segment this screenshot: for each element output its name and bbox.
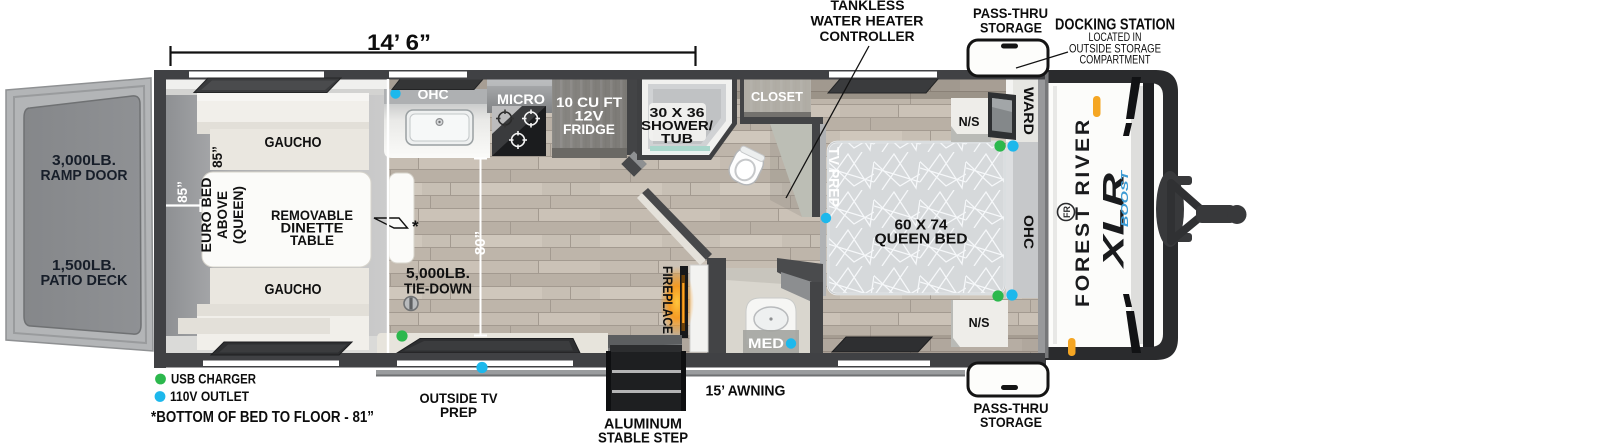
svg-text:MICRO: MICRO xyxy=(497,91,545,107)
svg-text:TIE-DOWN: TIE-DOWN xyxy=(404,281,472,298)
svg-text:85”: 85” xyxy=(210,146,225,168)
svg-text:TANKLESS: TANKLESS xyxy=(831,0,905,13)
svg-text:(QUEEN): (QUEEN) xyxy=(231,186,246,244)
svg-text:QUEEN BED: QUEEN BED xyxy=(875,232,968,248)
svg-text:*BOTTOM OF BED TO FLOOR - 81”: *BOTTOM OF BED TO FLOOR - 81” xyxy=(151,409,374,426)
svg-text:FOREST RIVER: FOREST RIVER xyxy=(1073,117,1094,307)
svg-text:14’ 6”: 14’ 6” xyxy=(367,30,431,55)
svg-text:3,000LB.: 3,000LB. xyxy=(52,153,116,169)
svg-text:*: * xyxy=(412,217,419,236)
svg-text:TABLE: TABLE xyxy=(290,232,334,248)
svg-text:COMPARTMENT: COMPARTMENT xyxy=(1080,55,1151,67)
svg-text:STABLE STEP: STABLE STEP xyxy=(598,430,688,444)
svg-text:TUB: TUB xyxy=(661,131,693,146)
svg-text:FRIDGE: FRIDGE xyxy=(563,122,615,137)
svg-text:85”: 85” xyxy=(175,181,190,203)
svg-text:USB CHARGER: USB CHARGER xyxy=(171,372,256,387)
svg-text:N/S: N/S xyxy=(969,316,990,330)
svg-text:MED: MED xyxy=(748,336,784,351)
svg-text:WATER HEATER: WATER HEATER xyxy=(811,13,924,29)
svg-text:GAUCHO: GAUCHO xyxy=(265,134,322,151)
svg-text:PATIO DECK: PATIO DECK xyxy=(41,273,129,289)
svg-text:5,000LB.: 5,000LB. xyxy=(406,265,470,282)
svg-text:TV PREP: TV PREP xyxy=(825,147,841,207)
svg-text:FIREPLACE: FIREPLACE xyxy=(660,266,676,334)
svg-text:N/S: N/S xyxy=(959,115,980,129)
svg-text:GAUCHO: GAUCHO xyxy=(265,281,322,298)
svg-text:WARD: WARD xyxy=(1021,87,1036,135)
svg-text:STORAGE: STORAGE xyxy=(980,20,1042,36)
svg-text:DOCKING STATION: DOCKING STATION xyxy=(1055,17,1175,34)
svg-text:STORAGE: STORAGE xyxy=(980,414,1042,430)
svg-text:ABOVE: ABOVE xyxy=(215,191,230,239)
svg-text:FR: FR xyxy=(1062,206,1072,218)
svg-text:110V OUTLET: 110V OUTLET xyxy=(170,389,250,404)
svg-text:RAMP DOOR: RAMP DOOR xyxy=(41,168,129,184)
svg-text:80”: 80” xyxy=(472,231,489,255)
svg-text:CLOSET: CLOSET xyxy=(751,89,803,104)
svg-text:BOOST: BOOST xyxy=(1119,169,1131,227)
svg-text:PREP: PREP xyxy=(440,404,477,420)
svg-text:OHC: OHC xyxy=(1021,215,1036,249)
svg-text:1,500LB.: 1,500LB. xyxy=(52,258,116,274)
svg-text:LOCATED IN: LOCATED IN xyxy=(1089,32,1142,44)
svg-text:CONTROLLER: CONTROLLER xyxy=(820,28,915,44)
svg-text:EURO BED: EURO BED xyxy=(199,177,214,252)
svg-text:15’ AWNING: 15’ AWNING xyxy=(706,383,786,400)
